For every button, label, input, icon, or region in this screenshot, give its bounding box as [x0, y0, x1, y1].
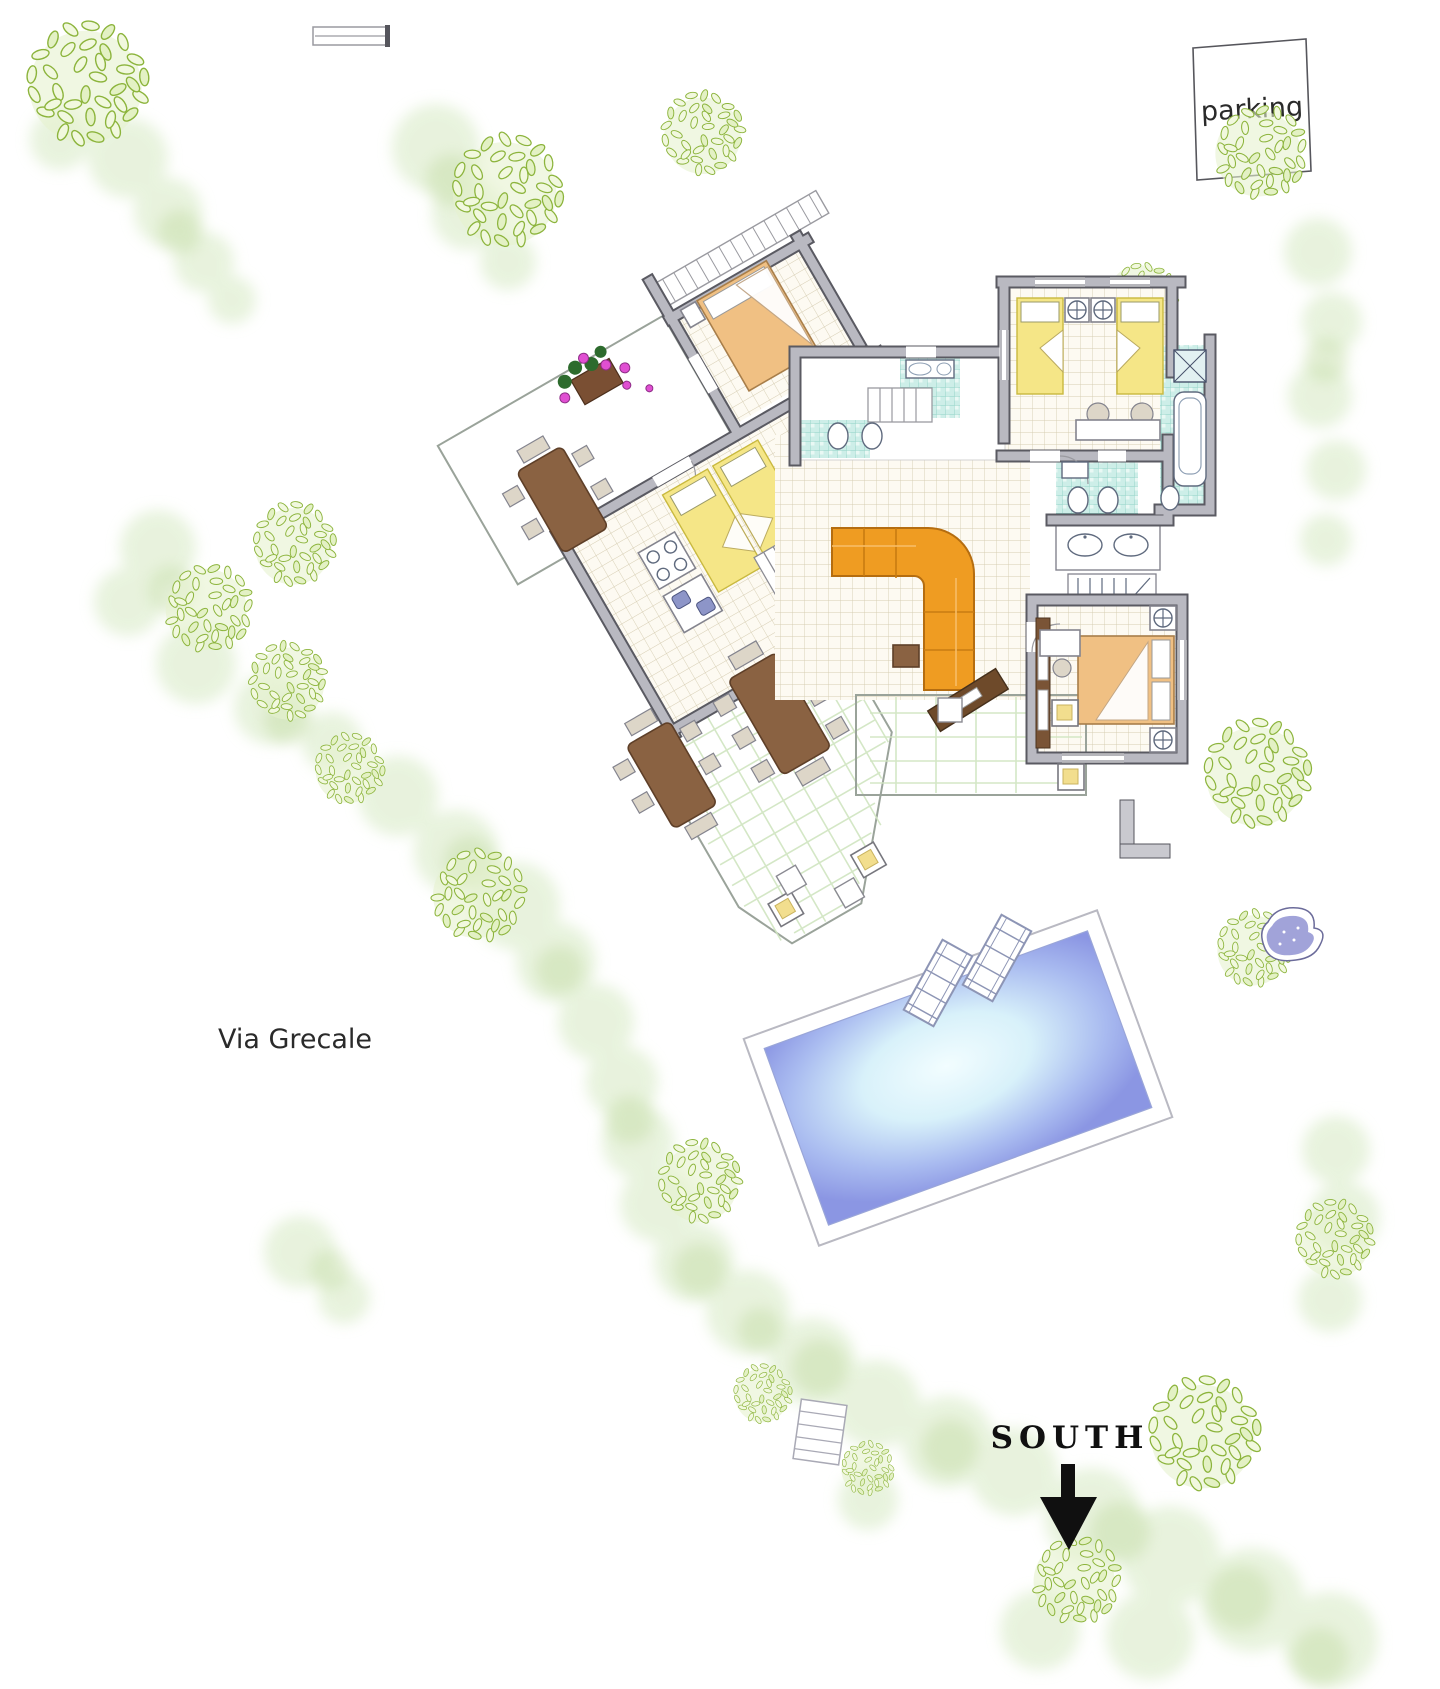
bathtub [1174, 392, 1206, 486]
tree [1203, 717, 1313, 830]
wall-stub [1120, 800, 1170, 858]
toilet [828, 423, 848, 449]
basin [906, 360, 954, 378]
site-plan: parking [0, 0, 1440, 1689]
tree [253, 501, 338, 588]
double-bed [1078, 636, 1174, 724]
bidet [1098, 487, 1118, 513]
single-bed [1017, 298, 1063, 394]
garden-bench [313, 25, 390, 47]
toilet [1161, 486, 1179, 510]
site-plan-svg: parking [0, 0, 1440, 1689]
toilet [1068, 487, 1088, 513]
entrance-steps [868, 388, 932, 422]
coffee-table [893, 645, 919, 667]
flower-planter [545, 331, 654, 433]
tree [649, 78, 758, 189]
shower [1174, 350, 1206, 382]
house-axis-wing [775, 279, 1212, 858]
garden-steps [793, 1399, 847, 1465]
bidet [862, 423, 882, 449]
compass-label: SOUTH [991, 1420, 1150, 1456]
tree [1148, 1375, 1262, 1493]
street-label: Via Grecale [218, 1024, 372, 1055]
basin [1062, 462, 1088, 478]
single-bed [1117, 298, 1163, 394]
vanity-sinks [1056, 520, 1160, 570]
